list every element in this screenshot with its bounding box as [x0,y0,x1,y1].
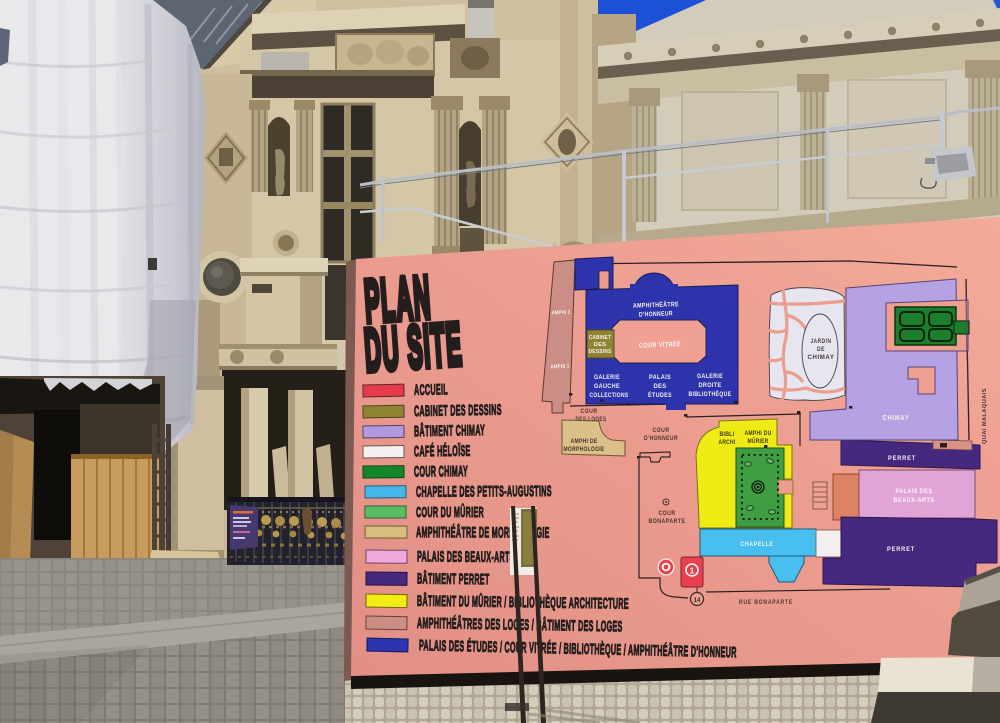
svg-text:D'HONNEUR: D'HONNEUR [639,310,673,318]
svg-text:DROITE: DROITE [699,382,722,389]
svg-text:COUR: COUR [581,408,598,415]
svg-text:CABINET: CABINET [589,335,611,341]
svg-text:JARDIN: JARDIN [811,339,832,345]
svg-text:COUR: COUR [659,510,676,517]
svg-text:QUAI MALAQUAIS: QUAI MALAQUAIS [982,388,988,444]
svg-text:PALAIS DES: PALAIS DES [896,488,933,495]
svg-text:MORPHOLOGIE: MORPHOLOGIE [564,447,605,453]
svg-text:BEAUX-ARTS: BEAUX-ARTS [894,497,935,504]
svg-text:GALERIE: GALERIE [594,374,620,381]
svg-text:PALAIS: PALAIS [649,374,671,381]
svg-text:GAUCHE: GAUCHE [594,383,620,390]
svg-text:BIBLI: BIBLI [720,432,735,438]
svg-text:COLLECTIONS: COLLECTIONS [590,392,629,399]
svg-text:MÛRIER: MÛRIER [748,438,769,445]
svg-text:RUE BONAPARTE: RUE BONAPARTE [739,599,793,606]
svg-text:PERRET: PERRET [888,455,916,462]
svg-text:BÂTIMENT PERRET: BÂTIMENT PERRET [417,571,490,588]
svg-text:BIBLIOTHÈQUE: BIBLIOTHÈQUE [689,389,732,398]
svg-text:PERRET: PERRET [887,546,915,553]
svg-text:CABINET DES DESSINS: CABINET DES DESSINS [414,402,502,420]
svg-text:DE: DE [817,347,825,353]
svg-text:COUR: COUR [653,427,670,434]
svg-text:D'HONNEUR: D'HONNEUR [644,435,678,442]
svg-text:ÉTUDES: ÉTUDES [648,390,672,399]
svg-text:AMPHI 2: AMPHI 2 [551,310,570,317]
svg-text:14: 14 [694,598,701,604]
svg-text:GALERIE: GALERIE [697,373,723,380]
svg-text:CHAPELLE DES PETITS-AUGUSTINS: CHAPELLE DES PETITS-AUGUSTINS [416,483,552,500]
svg-text:DESSINS: DESSINS [589,349,612,355]
svg-text:AMPHI 1: AMPHI 1 [550,364,569,371]
svg-text:PALAIS DES BEAUX-ARTS: PALAIS DES BEAUX-ARTS [417,549,515,566]
svg-text:DU SITE: DU SITE [362,310,464,384]
svg-text:COUR DU MÛRIER: COUR DU MÛRIER [416,504,484,521]
svg-text:ACCUEIL: ACCUEIL [414,381,448,398]
svg-text:CAFÉ HÉLOÏSE: CAFÉ HÉLOÏSE [414,443,471,460]
svg-text:BONAPARTE: BONAPARTE [649,518,686,525]
svg-text:AMPHI DU: AMPHI DU [745,431,772,437]
svg-text:1: 1 [690,567,695,576]
svg-text:COUR CHIMAY: COUR CHIMAY [414,463,468,480]
svg-text:CHAPELLE: CHAPELLE [741,541,774,548]
svg-text:AMPHI DE: AMPHI DE [571,439,598,445]
svg-text:CHIMAY: CHIMAY [883,415,910,422]
svg-text:ARCHI: ARCHI [719,440,736,446]
svg-text:BÂTIMENT DU MÛRIER / BIBLIOTHÈ: BÂTIMENT DU MÛRIER / BIBLIOTHÈQUE ARCHIT… [417,593,629,613]
svg-text:CHIMAY: CHIMAY [808,355,835,361]
svg-text:BÂTIMENT CHIMAY: BÂTIMENT CHIMAY [414,422,485,440]
svg-text:DES: DES [654,383,667,390]
svg-text:DES: DES [594,342,607,348]
